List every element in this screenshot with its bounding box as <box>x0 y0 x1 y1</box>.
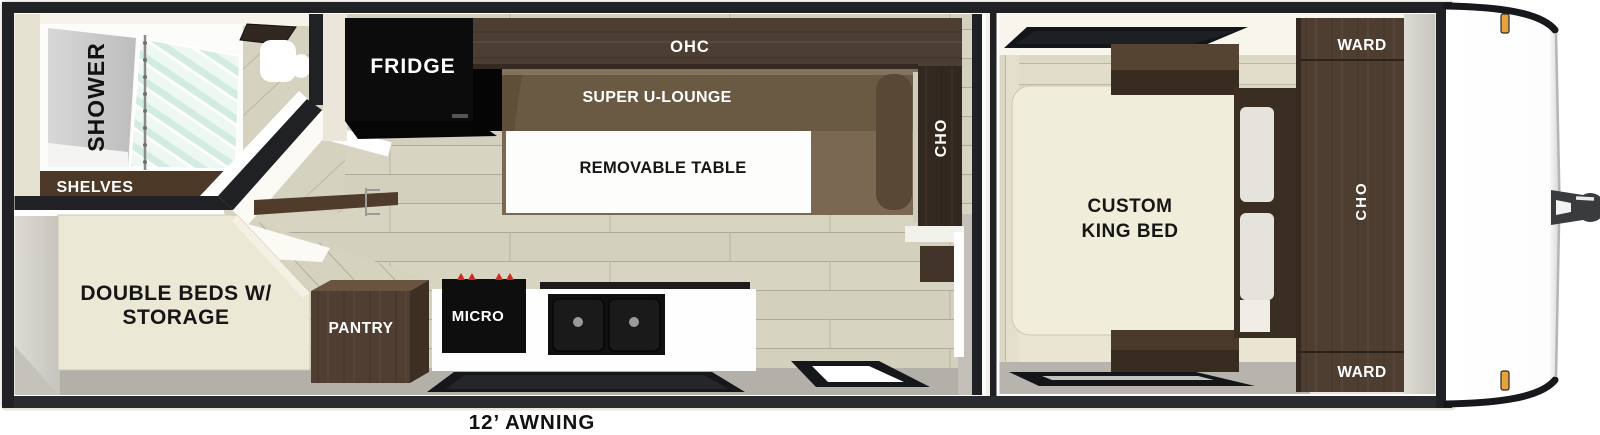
svg-text:12’ AWNING: 12’ AWNING <box>469 411 596 434</box>
svg-text:CHO: CHO <box>933 119 950 158</box>
svg-text:PANTRY: PANTRY <box>329 320 394 337</box>
svg-text:CUSTOM: CUSTOM <box>1088 196 1173 217</box>
svg-text:REMOVABLE TABLE: REMOVABLE TABLE <box>579 159 746 177</box>
svg-text:SHOWER: SHOWER <box>83 42 109 152</box>
svg-text:KING BED: KING BED <box>1082 221 1179 242</box>
svg-text:CHO: CHO <box>1353 181 1370 220</box>
svg-text:SHELVES: SHELVES <box>57 179 134 196</box>
svg-text:OHC: OHC <box>670 38 710 56</box>
svg-text:WARD: WARD <box>1337 364 1386 381</box>
svg-text:DOUBLE BEDS W/: DOUBLE BEDS W/ <box>80 282 271 305</box>
svg-text:WARD: WARD <box>1337 37 1386 54</box>
svg-text:MICRO: MICRO <box>452 308 505 325</box>
svg-text:FRIDGE: FRIDGE <box>370 55 455 78</box>
svg-text:SUPER U-LOUNGE: SUPER U-LOUNGE <box>582 89 731 106</box>
svg-text:STORAGE: STORAGE <box>123 306 230 329</box>
